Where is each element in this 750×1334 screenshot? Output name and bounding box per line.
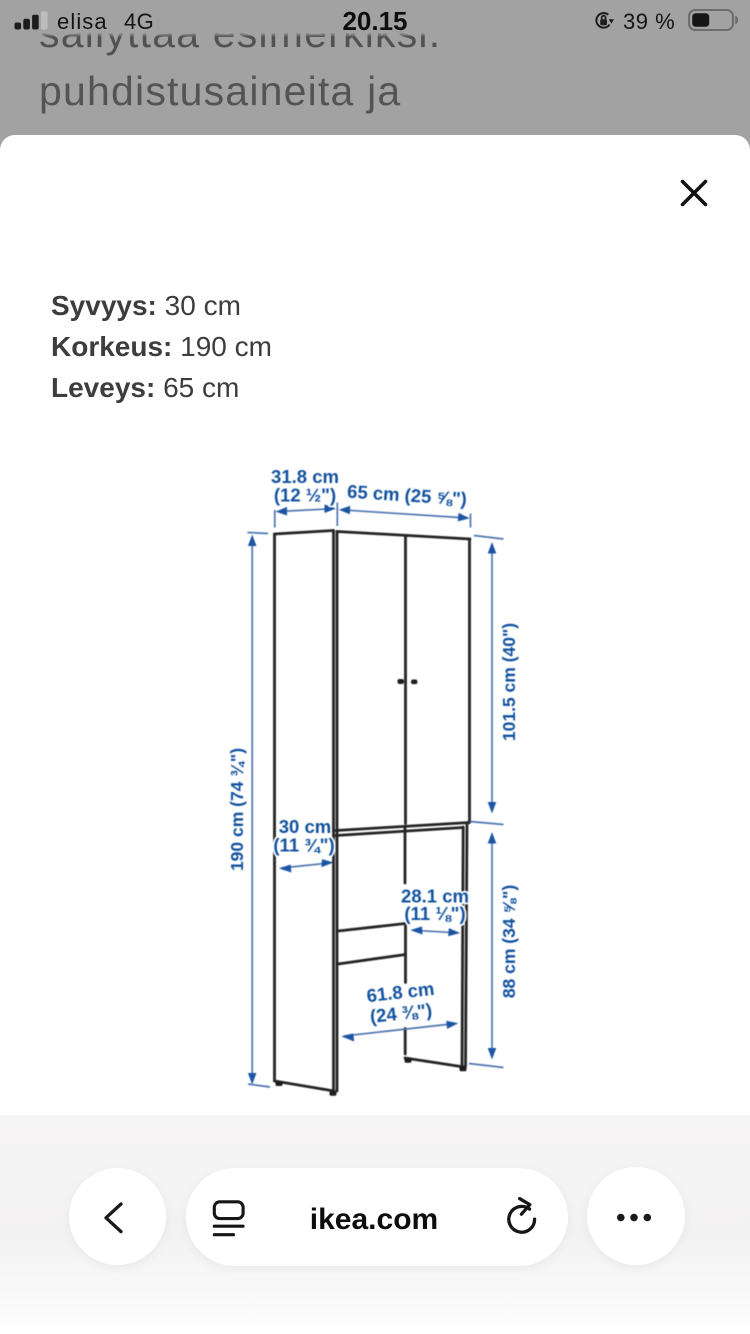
svg-text:88 cm (34 ⅝"): 88 cm (34 ⅝") [499, 885, 519, 998]
svg-text:(11 ⅛"): (11 ⅛") [404, 903, 465, 924]
svg-text:65 cm (25 ⅝"): 65 cm (25 ⅝") [347, 481, 468, 510]
svg-text:(11 ¾"): (11 ¾") [273, 835, 334, 856]
svg-text:(12 ½"): (12 ½") [274, 485, 336, 506]
svg-text:190 cm (74 ¾"): 190 cm (74 ¾") [227, 748, 247, 871]
svg-text:101.5 cm (40"): 101.5 cm (40") [499, 623, 519, 741]
